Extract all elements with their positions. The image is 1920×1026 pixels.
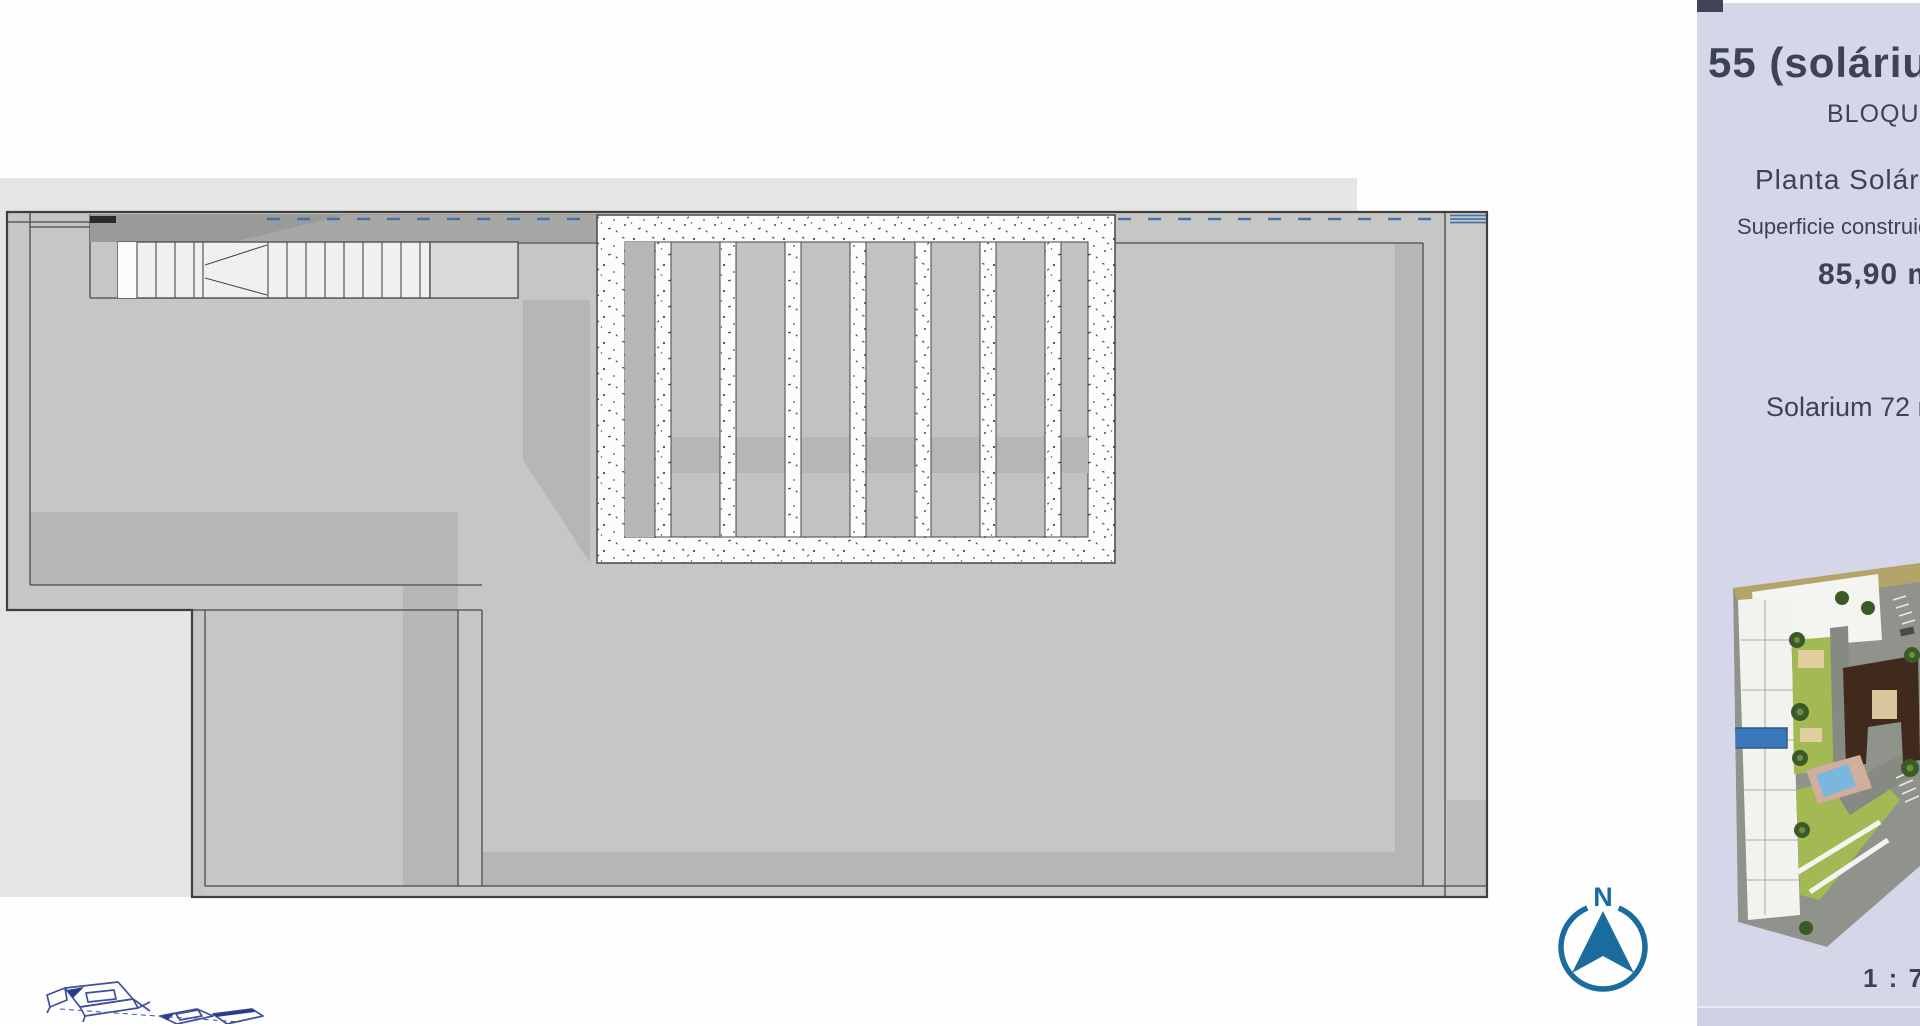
- pergola: [597, 215, 1115, 563]
- blueprint-sketch: [47, 982, 263, 1024]
- page: 55 (solárium BLOQUE Planta Solárium Supe…: [0, 0, 1920, 1024]
- floor-plan-drawing: N: [0, 0, 1920, 1024]
- north-label: N: [1593, 882, 1613, 912]
- unit-location-marker: [1733, 728, 1787, 748]
- north-compass-icon: N: [1561, 882, 1645, 989]
- site-plan-thumbnail: [1733, 563, 1920, 947]
- stairs: [118, 242, 518, 298]
